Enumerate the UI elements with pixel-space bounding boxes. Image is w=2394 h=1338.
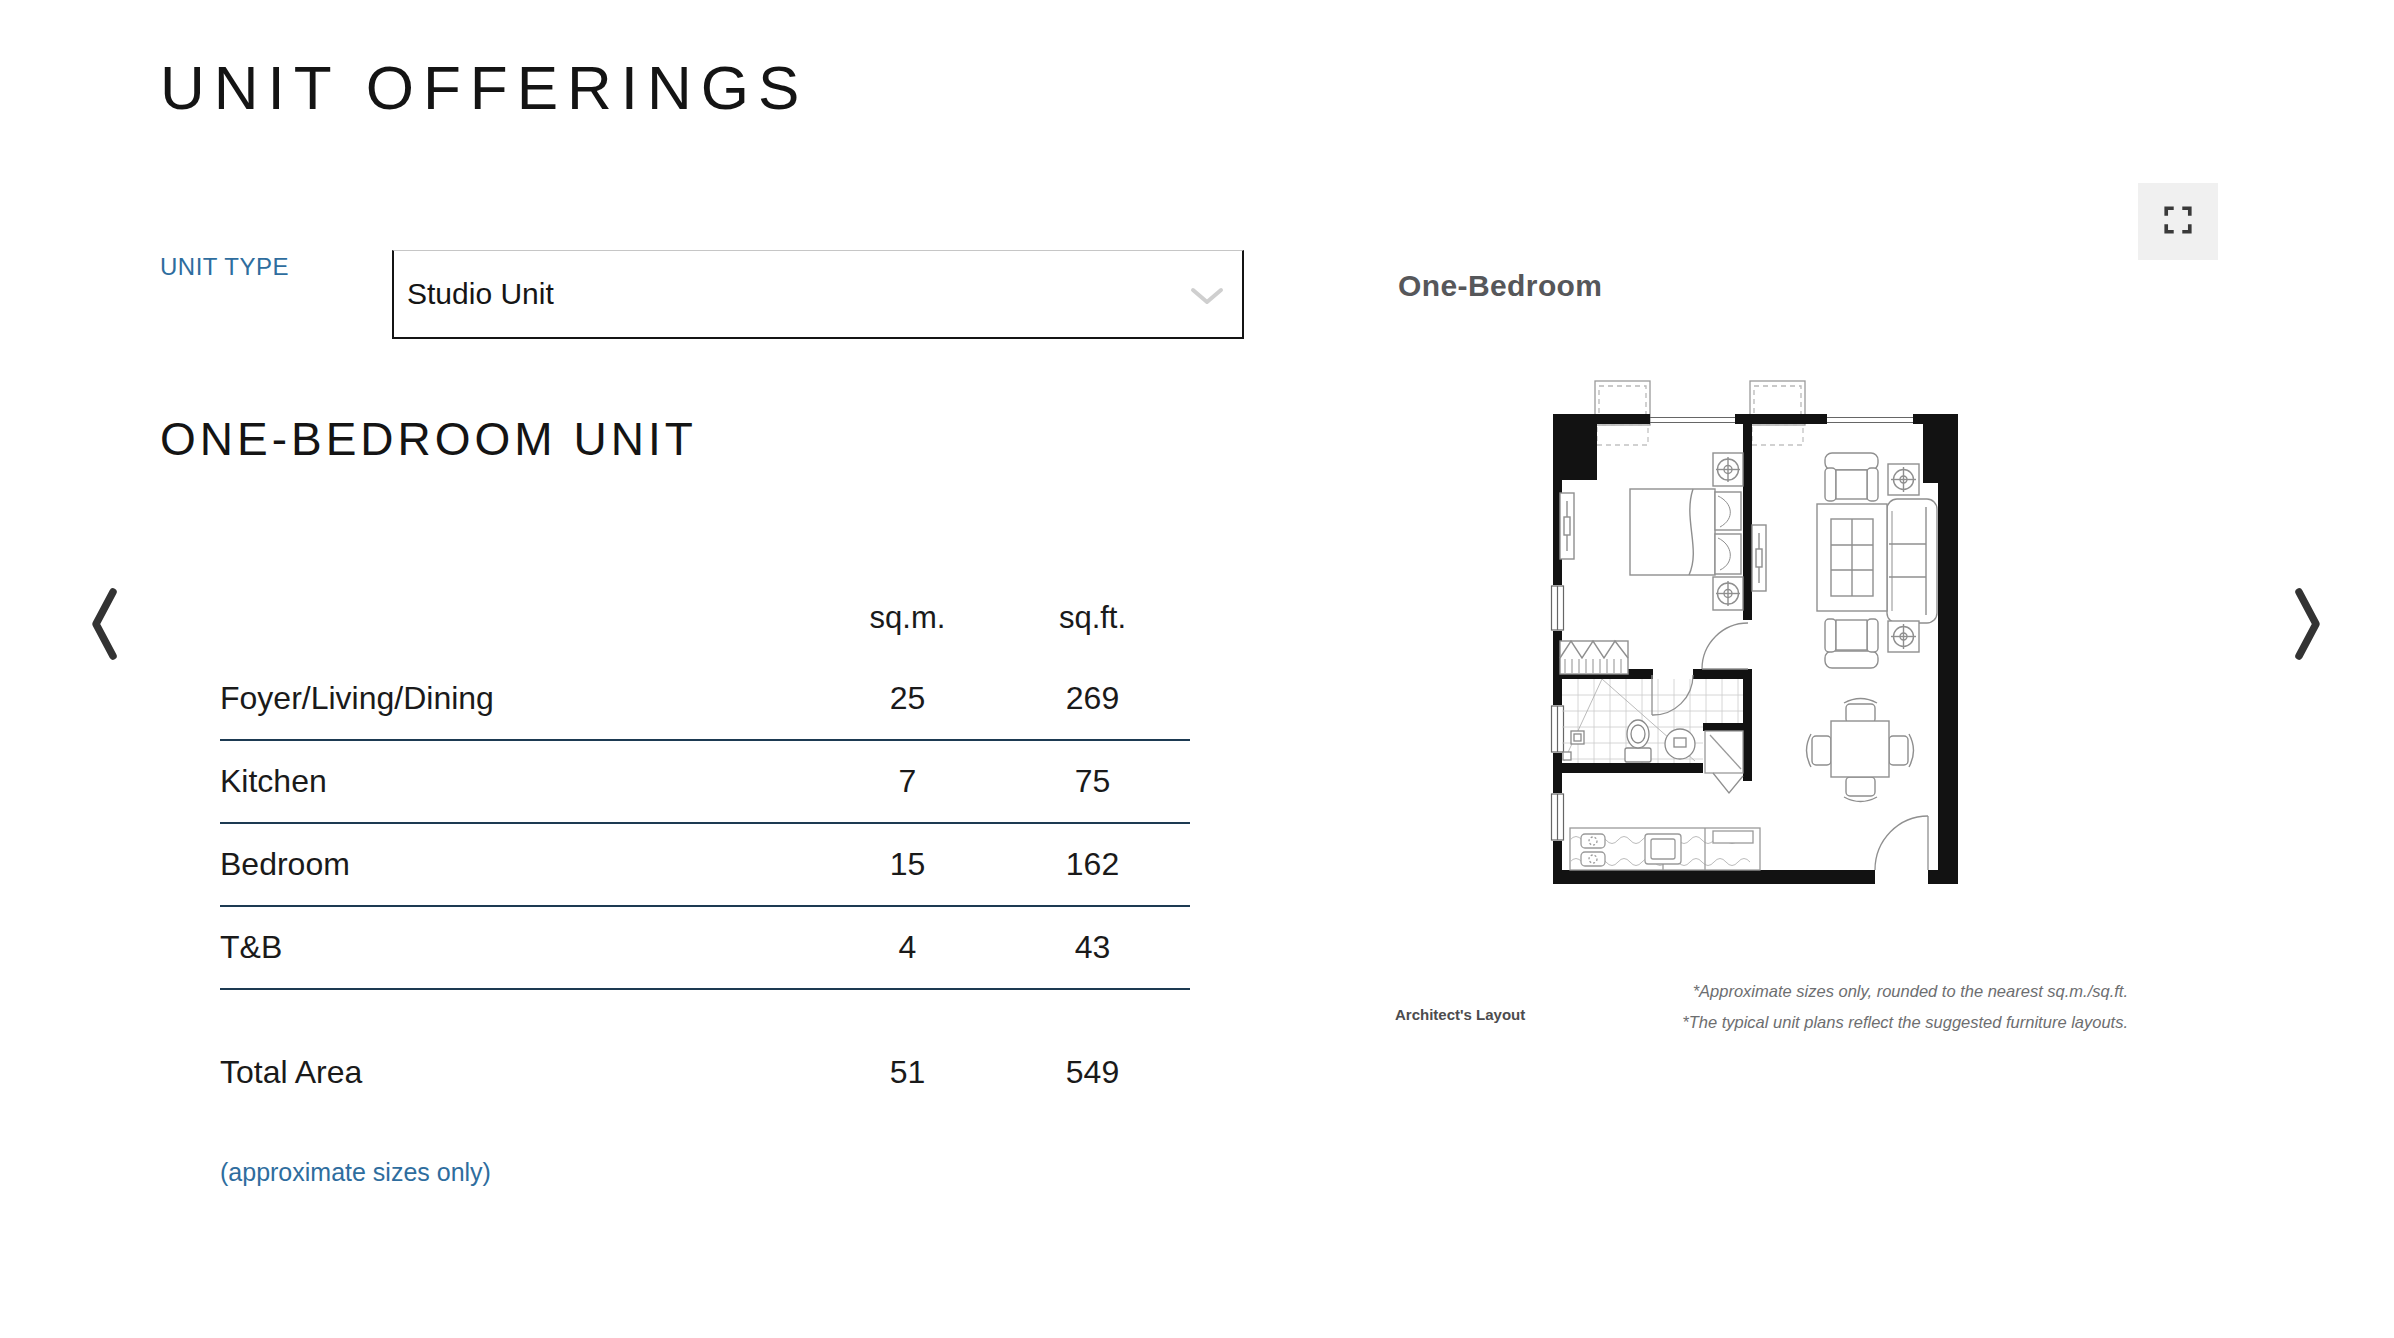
row-label: Foyer/Living/Dining <box>220 680 820 717</box>
row-label: Bedroom <box>220 846 820 883</box>
bedroom-furniture <box>1560 453 1743 674</box>
approx-sizes-note: (approximate sizes only) <box>220 1158 1190 1187</box>
disclaimer-line: *Approximate sizes only, rounded to the … <box>1682 976 2128 1007</box>
section-heading: ONE-BEDROOM UNIT <box>160 412 697 466</box>
window-bays <box>1595 381 1805 445</box>
total-sqm: 51 <box>820 1054 995 1091</box>
row-label: Kitchen <box>220 763 820 800</box>
unit-type-select[interactable]: Studio Unit <box>392 250 1244 339</box>
column-header-sqft: sq.ft. <box>995 600 1190 636</box>
carousel-next-button[interactable] <box>2292 586 2324 665</box>
floorplan-image <box>1545 373 1975 903</box>
dining-set <box>1807 699 1914 802</box>
table-row: Foyer/Living/Dining 25 269 <box>220 658 1190 741</box>
row-sqft: 162 <box>995 846 1190 883</box>
floorplan-panel: One-Bedroom <box>1318 183 2218 1085</box>
architect-layout-label: Architect's Layout <box>1395 1006 1525 1023</box>
row-sqm: 15 <box>820 846 995 883</box>
living-furniture <box>1752 453 1937 668</box>
table-row: Kitchen 7 75 <box>220 741 1190 824</box>
total-label: Total Area <box>220 1054 820 1091</box>
page-title: UNIT OFFERINGS <box>160 52 808 123</box>
row-sqft: 43 <box>995 929 1190 966</box>
table-row: Bedroom 15 162 <box>220 824 1190 907</box>
floorplan-disclaimer: *Approximate sizes only, rounded to the … <box>1682 976 2128 1038</box>
chevron-down-icon <box>1190 287 1224 311</box>
row-sqm: 7 <box>820 763 995 800</box>
total-sqft: 549 <box>995 1054 1190 1091</box>
fullscreen-button[interactable] <box>2138 183 2218 260</box>
row-label: T&B <box>220 929 820 966</box>
disclaimer-line: *The typical unit plans reflect the sugg… <box>1682 1007 2128 1038</box>
carousel-prev-button[interactable] <box>88 586 120 665</box>
unit-type-selected-value: Studio Unit <box>407 277 554 311</box>
row-sqft: 269 <box>995 680 1190 717</box>
table-row: T&B 4 43 <box>220 907 1190 990</box>
fullscreen-icon <box>2163 205 2193 238</box>
area-table: sq.m. sq.ft. Foyer/Living/Dining 25 269 … <box>220 578 1190 1187</box>
table-total-row: Total Area 51 549 <box>220 1030 1190 1114</box>
chevron-right-icon <box>2292 650 2324 665</box>
floorplan-title: One-Bedroom <box>1398 269 1602 303</box>
row-sqft: 75 <box>995 763 1190 800</box>
column-header-sqm: sq.m. <box>820 600 995 636</box>
row-sqm: 25 <box>820 680 995 717</box>
floorplan-svg <box>1545 373 1975 903</box>
unit-type-label: UNIT TYPE <box>160 253 289 281</box>
table-header-row: sq.m. sq.ft. <box>220 578 1190 658</box>
chevron-left-icon <box>88 650 120 665</box>
kitchen <box>1570 828 1760 870</box>
unit-offerings-page: UNIT OFFERINGS UNIT TYPE Studio Unit ONE… <box>0 0 2394 1338</box>
row-sqm: 4 <box>820 929 995 966</box>
